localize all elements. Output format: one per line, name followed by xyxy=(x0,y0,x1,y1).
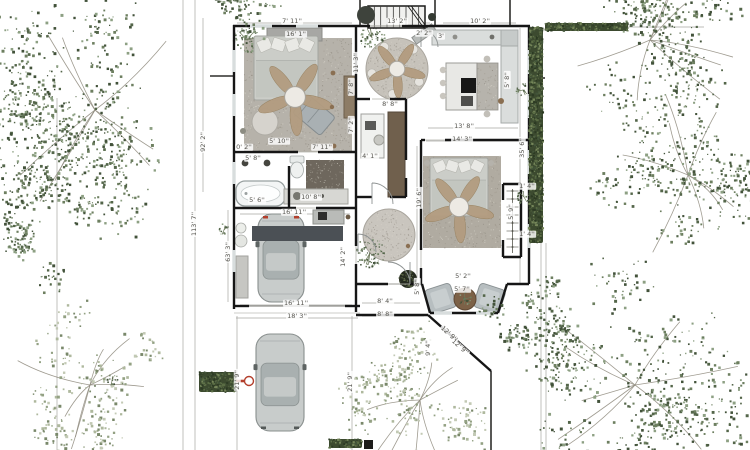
tree-bottom-left xyxy=(18,300,164,450)
driveway-car xyxy=(254,334,307,431)
office-wardrobe xyxy=(388,112,405,197)
nightstand xyxy=(488,160,494,166)
kitchen-plant-pot xyxy=(498,98,504,104)
kitchen-cooktop xyxy=(461,78,476,93)
garage-desk xyxy=(313,210,344,224)
hedge-bottom xyxy=(328,439,362,449)
garage-desk-item xyxy=(318,212,327,220)
kitchen-chair xyxy=(484,56,491,63)
vanity-sink xyxy=(293,192,301,200)
tree-right xyxy=(590,79,750,252)
shrub-dark xyxy=(357,6,375,24)
gate-marker xyxy=(235,377,254,386)
garage-planter xyxy=(236,223,246,233)
hall-round-rug xyxy=(363,209,415,261)
nightstand xyxy=(424,160,430,166)
office-chair xyxy=(374,135,384,145)
counter-item xyxy=(453,35,458,40)
garage-door-header xyxy=(252,226,343,241)
tree-top-left xyxy=(0,0,166,240)
door-knob xyxy=(331,71,336,76)
vanity-item xyxy=(320,194,324,198)
shower-mat xyxy=(306,160,344,190)
toilet xyxy=(290,156,304,178)
tree-left xyxy=(0,184,94,294)
kitchen-stool xyxy=(440,67,446,73)
hedge-right xyxy=(528,26,544,243)
site-floor-plan: 7' 11''13' 2''10' 2''16' 1''2' 2''3'8' 8… xyxy=(0,0,750,450)
floor-dot xyxy=(240,128,246,134)
office-laptop xyxy=(365,121,376,130)
shrub-dark xyxy=(428,13,436,21)
kitchen-stool xyxy=(440,93,446,99)
bath-sconce xyxy=(242,160,249,167)
hedge-top-right xyxy=(544,22,628,32)
door-knob xyxy=(332,144,337,149)
garage-cabinet xyxy=(236,256,248,298)
hedge-left xyxy=(199,371,237,393)
kitchen-chair xyxy=(484,111,491,118)
kitchen-sink-unit xyxy=(461,96,473,106)
hall-knob xyxy=(406,244,410,248)
kitchen-table xyxy=(477,63,499,110)
bush xyxy=(219,223,229,234)
tree-bottom-right xyxy=(524,258,750,450)
utility-box xyxy=(364,440,373,449)
entry-stairs xyxy=(368,6,427,28)
counter-item xyxy=(490,35,495,40)
furniture-layer xyxy=(233,6,519,449)
garage-knob xyxy=(346,215,351,220)
wall xyxy=(428,315,491,371)
floor-plan-canvas xyxy=(0,0,750,450)
bedroom-dresser xyxy=(344,76,355,118)
tree-bottom-center xyxy=(338,321,486,450)
bed-dot xyxy=(330,105,334,109)
kitchen-fridge xyxy=(501,30,518,46)
kitchen-stool xyxy=(440,80,446,86)
bath-sconce xyxy=(264,160,271,167)
garage-planter xyxy=(235,235,247,247)
bathtub xyxy=(236,181,285,206)
kitchen-counter-top xyxy=(432,30,506,45)
